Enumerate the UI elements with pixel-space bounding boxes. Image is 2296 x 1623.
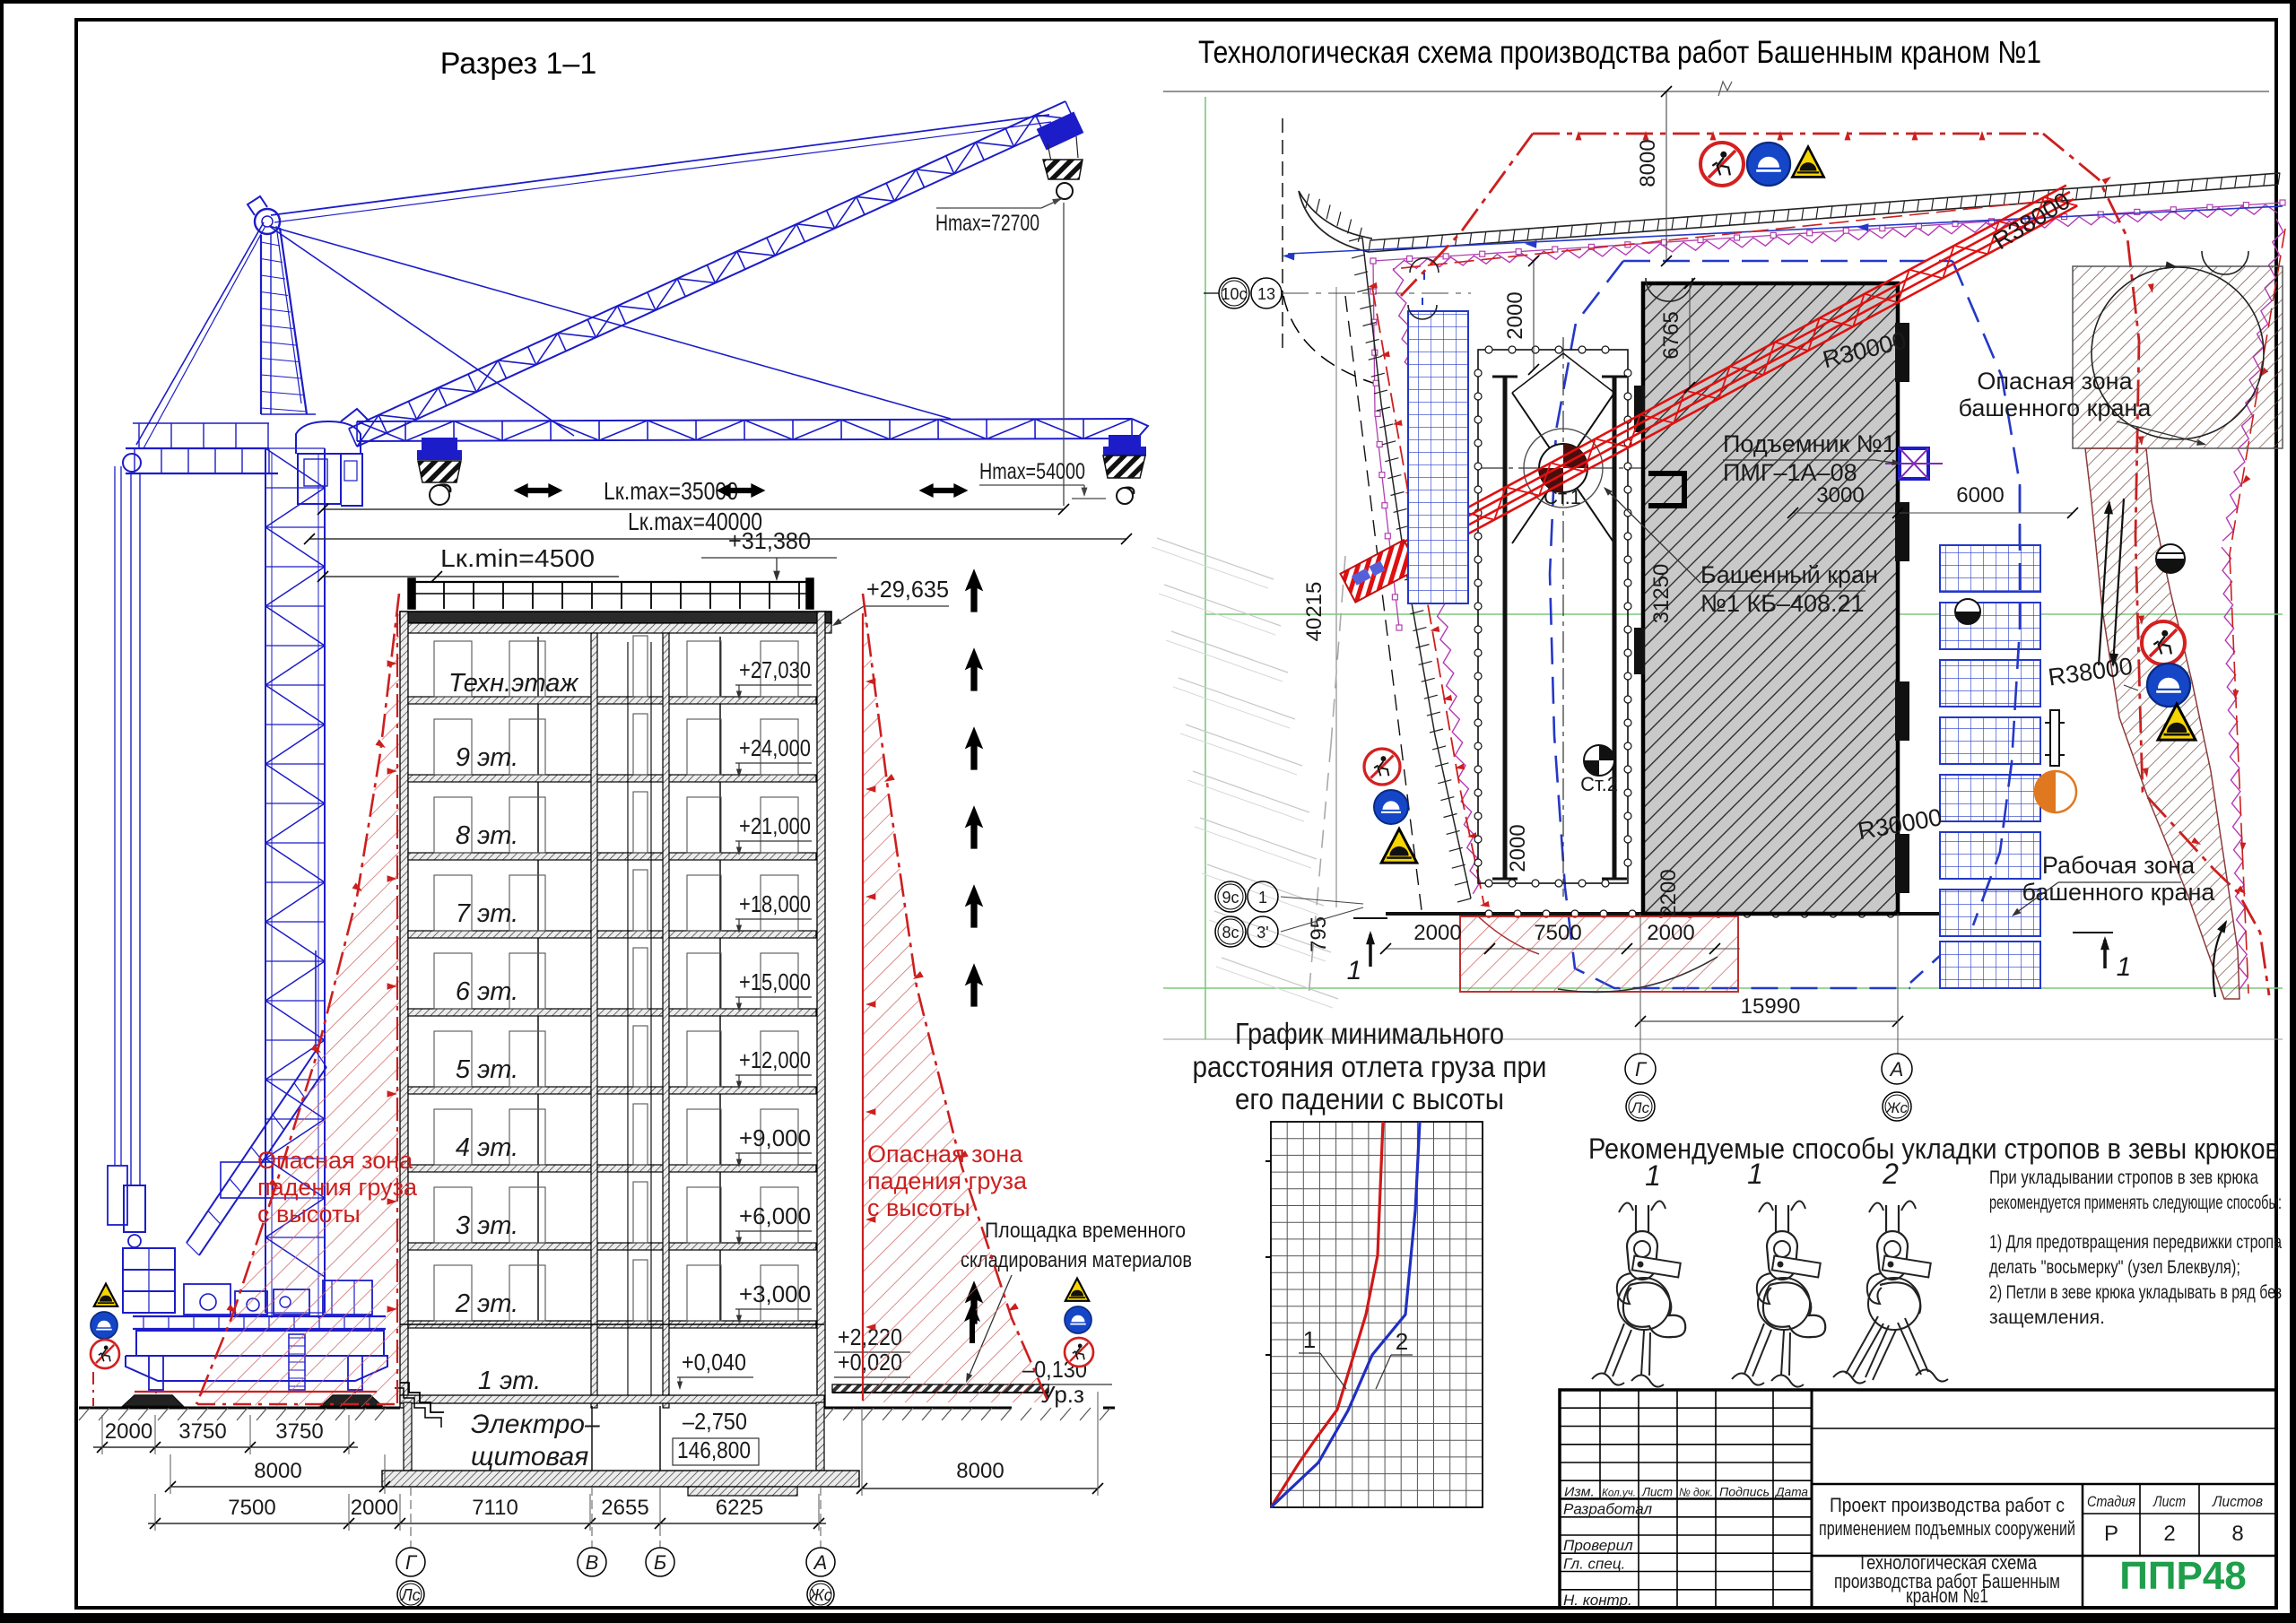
svg-text:146,800: 146,800 [677, 1436, 751, 1463]
svg-text:+3,000: +3,000 [739, 1280, 811, 1307]
svg-text:+24,000: +24,000 [739, 734, 811, 761]
svg-text:3 эт.: 3 эт. [456, 1211, 518, 1240]
svg-text:3750: 3750 [178, 1419, 226, 1444]
svg-text:+27,030: +27,030 [739, 656, 811, 683]
svg-text:7 эт.: 7 эт. [456, 899, 518, 928]
svg-text:его падении с высоты: его падении с высоты [1235, 1082, 1504, 1115]
svg-text:Электро–: Электро– [471, 1410, 600, 1439]
svg-text:+15,000: +15,000 [739, 968, 811, 995]
svg-text:+31,380: +31,380 [728, 527, 811, 554]
svg-text:с высоты: с высоты [867, 1194, 970, 1221]
svg-text:Н. контр.: Н. контр. [1563, 1592, 1632, 1609]
svg-text:+29,635: +29,635 [866, 576, 949, 603]
svg-text:А: А [1889, 1058, 1904, 1081]
svg-text:8000: 8000 [1636, 139, 1660, 187]
svg-text:Hmax=54000: Hmax=54000 [979, 459, 1085, 484]
svg-text:1: 1 [1347, 956, 1362, 985]
svg-text:Разработал: Разработал [1563, 1501, 1652, 1518]
svg-text:2000: 2000 [1503, 291, 1527, 339]
svg-text:Подпись: Подпись [1719, 1484, 1770, 1498]
svg-text:краном №1: краном №1 [1906, 1584, 1988, 1607]
svg-text:1: 1 [1747, 1158, 1763, 1190]
svg-text:Hmax=72700: Hmax=72700 [935, 211, 1039, 236]
svg-text:10с: 10с [1221, 285, 1247, 303]
svg-text:Башенный кран: Башенный кран [1700, 561, 1878, 588]
svg-text:–2,750: –2,750 [683, 1408, 747, 1435]
svg-text:13: 13 [1257, 285, 1275, 303]
svg-text:+6,000: +6,000 [739, 1202, 811, 1229]
svg-text:9 эт.: 9 эт. [456, 743, 518, 772]
svg-text:+21,000: +21,000 [739, 812, 811, 839]
svg-text:Технологическая схема производ: Технологическая схема производства работ… [1198, 35, 2041, 70]
svg-text:Г: Г [1635, 1058, 1648, 1081]
svg-text:Ст.2: Ст.2 [1580, 773, 1618, 795]
svg-text:Кол.уч.: Кол.уч. [1602, 1486, 1636, 1498]
svg-text:Изм.: Изм. [1564, 1484, 1595, 1499]
svg-text:Жс: Жс [808, 1586, 832, 1604]
svg-text:Проверил: Проверил [1563, 1537, 1633, 1554]
svg-text:В: В [586, 1551, 599, 1574]
svg-text:Лист: Лист [2152, 1493, 2186, 1510]
svg-text:795: 795 [1307, 916, 1331, 952]
svg-text:40215: 40215 [1302, 582, 1326, 642]
svg-text:9с: 9с [1222, 889, 1239, 907]
svg-text:6225: 6225 [716, 1496, 763, 1520]
svg-text:1: 1 [1303, 1326, 1316, 1353]
svg-text:Опасная зона: Опасная зона [867, 1141, 1023, 1167]
svg-text:Жс: Жс [1885, 1099, 1909, 1116]
svg-text:защемления.: защемления. [1989, 1307, 2105, 1328]
svg-text:2) Петли в зеве крюка укладыва: 2) Петли в зеве крюка укладывать в ряд б… [1989, 1282, 2282, 1303]
svg-text:+18,000: +18,000 [739, 890, 811, 917]
svg-text:Lк.min=4500: Lк.min=4500 [440, 544, 595, 572]
svg-text:Гл. спец.: Гл. спец. [1563, 1555, 1625, 1572]
svg-text:2000: 2000 [1647, 921, 1694, 945]
svg-text:7500: 7500 [228, 1496, 275, 1520]
svg-text:+9,000: +9,000 [739, 1124, 811, 1151]
svg-text:щитовая: щитовая [471, 1442, 588, 1471]
svg-text:6000: 6000 [1956, 483, 2004, 508]
svg-text:8 эт.: 8 эт. [456, 821, 518, 850]
svg-text:7110: 7110 [472, 1496, 518, 1520]
svg-text:График минимального: График минимального [1235, 1017, 1504, 1050]
svg-text:3000: 3000 [1816, 483, 1864, 508]
svg-text:1: 1 [1645, 1159, 1661, 1192]
svg-text:2655: 2655 [601, 1496, 648, 1520]
svg-text:делать "восьмерку" (узел Блекв: делать "восьмерку" (узел Блеквуля); [1989, 1257, 2240, 1278]
svg-text:Р: Р [2104, 1522, 2118, 1546]
svg-text:применением подъемных сооружен: применением подъемных сооружений [1819, 1517, 2075, 1540]
svg-text:1: 1 [2117, 952, 2132, 982]
svg-text:4 эт.: 4 эт. [456, 1133, 518, 1162]
svg-text:ПМГ–1А–08: ПМГ–1А–08 [1723, 459, 1857, 486]
svg-text:Стадия: Стадия [2087, 1493, 2135, 1510]
svg-text:Лс: Лс [1631, 1099, 1650, 1116]
svg-text:Листов: Листов [2212, 1493, 2263, 1510]
svg-text:1: 1 [1258, 889, 1267, 907]
svg-text:8с: 8с [1222, 924, 1239, 942]
svg-text:2000: 2000 [351, 1496, 398, 1520]
svg-text:Площадка временного: Площадка временного [985, 1219, 1186, 1243]
svg-text:Рекомендуемые способы укладки: Рекомендуемые способы укладки стропов в … [1588, 1133, 2279, 1165]
svg-text:ППР48: ППР48 [2119, 1554, 2247, 1598]
svg-text:3': 3' [1257, 924, 1268, 942]
svg-text:Разрез 1–1: Разрез 1–1 [440, 47, 597, 81]
svg-text:1) Для предотвращения перед: 1) Для предотвращения передвижки стропа [1989, 1232, 2282, 1253]
svg-text:Рабочая зона: Рабочая зона [2042, 852, 2196, 879]
svg-text:№ док.: № док. [1679, 1485, 1713, 1498]
svg-text:1 эт.: 1 эт. [478, 1367, 541, 1395]
svg-text:6 эт.: 6 эт. [456, 977, 518, 1006]
svg-text:башенного крана: башенного крана [1959, 395, 2152, 421]
svg-text:падения груза: падения груза [867, 1167, 1028, 1194]
svg-text:Опасная зона: Опасная зона [257, 1147, 413, 1174]
svg-text:А: А [813, 1551, 828, 1574]
svg-text:падения груза: падения груза [257, 1174, 418, 1201]
svg-text:8000: 8000 [956, 1459, 1004, 1483]
svg-text:2200: 2200 [1657, 869, 1681, 916]
svg-text:5 эт.: 5 эт. [456, 1055, 518, 1084]
svg-text:с высоты: с высоты [257, 1201, 361, 1228]
svg-text:2000: 2000 [1413, 921, 1461, 945]
svg-text:2: 2 [1396, 1328, 1408, 1355]
svg-text:Проект производства работ с: Проект производства работ с [1830, 1494, 2065, 1516]
svg-text:2000: 2000 [105, 1419, 152, 1444]
svg-text:2000: 2000 [1506, 824, 1530, 872]
svg-text:расстояния отлета груза при: расстояния отлета груза при [1193, 1050, 1547, 1083]
svg-text:8: 8 [2231, 1522, 2243, 1546]
svg-text:Лс: Лс [400, 1586, 420, 1604]
svg-text:башенного крана: башенного крана [2022, 879, 2216, 906]
svg-text:8000: 8000 [254, 1459, 301, 1483]
svg-text:Б: Б [654, 1551, 666, 1574]
svg-text:+0,040: +0,040 [682, 1349, 746, 1376]
svg-text:2: 2 [1882, 1158, 1899, 1190]
svg-text:Опасная зона: Опасная зона [1977, 368, 2133, 395]
svg-text:Дата: Дата [1774, 1484, 1808, 1498]
svg-text:15990: 15990 [1741, 994, 1801, 1019]
svg-text:Техн.этаж: Техн.этаж [448, 669, 578, 698]
svg-text:+12,000: +12,000 [739, 1046, 811, 1073]
svg-text:При укладывании стропов в зев: При укладывании стропов в зев крюка [1989, 1167, 2258, 1188]
svg-text:2: 2 [2163, 1522, 2175, 1546]
svg-text:2 эт.: 2 эт. [455, 1289, 518, 1318]
svg-text:рекомендуется применять следую: рекомендуется применять следующие способ… [1989, 1193, 2282, 1213]
svg-text:7500: 7500 [1534, 921, 1581, 945]
svg-text:3750: 3750 [275, 1419, 323, 1444]
svg-text:Подъемник №1: Подъемник №1 [1723, 430, 1896, 457]
svg-text:Лист: Лист [1641, 1484, 1673, 1498]
svg-text:№1 КБ–408.21: №1 КБ–408.21 [1700, 590, 1865, 617]
svg-text:6765: 6765 [1659, 311, 1683, 359]
svg-text:Г: Г [405, 1551, 418, 1574]
svg-text:31250: 31250 [1649, 564, 1674, 624]
